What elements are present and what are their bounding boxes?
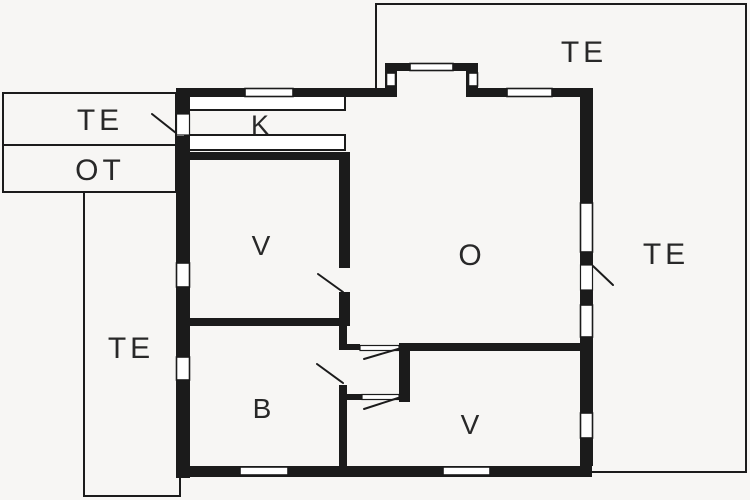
window-bottom-bedroom bbox=[443, 467, 490, 475]
bathroom-door-swing bbox=[317, 364, 343, 383]
wall-left bbox=[176, 287, 190, 357]
label-te-right-terrace: TE bbox=[643, 238, 689, 271]
wall-right bbox=[580, 290, 593, 305]
wall-bedroom-bathroom bbox=[190, 318, 345, 326]
window-right-1 bbox=[581, 203, 593, 252]
window-top-left bbox=[245, 89, 293, 97]
bedroom-upper-door-swing bbox=[318, 274, 343, 292]
terrace-door-opening bbox=[581, 265, 593, 290]
window-top-right bbox=[507, 89, 552, 97]
label-te-porch: TE bbox=[77, 104, 123, 137]
window-left-upper bbox=[177, 263, 190, 287]
wall-bottom bbox=[176, 466, 592, 477]
wall-kitchen-bedroom bbox=[183, 152, 350, 160]
label-te-top-right-terrace: TE bbox=[561, 36, 607, 69]
label-kitchen: K bbox=[251, 110, 271, 140]
interior-walls bbox=[183, 152, 580, 466]
label-bathroom: B bbox=[253, 393, 274, 424]
window-right-3 bbox=[581, 413, 593, 438]
window-bottom-bathroom bbox=[240, 467, 288, 475]
window-bay-top bbox=[410, 64, 453, 71]
front-door-opening bbox=[177, 114, 190, 135]
wall-stub-hall-bottom bbox=[339, 394, 362, 400]
label-ot-utility: OT bbox=[75, 154, 125, 187]
window-bay-left bbox=[387, 73, 396, 86]
label-bedroom-lower: V bbox=[461, 409, 482, 440]
window-right-2 bbox=[581, 305, 593, 337]
exterior-walls bbox=[176, 63, 593, 478]
terrace-top-right-outline bbox=[376, 4, 746, 472]
label-living-room: O bbox=[458, 239, 485, 272]
label-bedroom-upper: V bbox=[252, 230, 273, 261]
wall-living-bedroom-lower bbox=[399, 343, 580, 351]
floorplan-drawing: TE OT TE TE TE K V O B V bbox=[0, 0, 750, 500]
floorplan-canvas: TE OT TE TE TE K V O B V bbox=[0, 0, 750, 500]
wall-stub-hall-top bbox=[339, 344, 360, 350]
wall-right bbox=[580, 252, 593, 265]
wall-bedroom-upper-right bbox=[339, 160, 350, 268]
window-left-lower bbox=[177, 357, 190, 380]
front-door-swing bbox=[152, 114, 176, 133]
terrace-door-swing bbox=[593, 266, 613, 285]
terrace-outlines bbox=[3, 4, 746, 496]
wall-right bbox=[580, 337, 593, 413]
label-te-left-terrace: TE bbox=[108, 332, 154, 365]
wall-left bbox=[176, 380, 190, 478]
wall-closet-right bbox=[399, 343, 410, 402]
wall-right bbox=[580, 88, 593, 203]
wall-right bbox=[580, 438, 593, 466]
window-bay-right bbox=[469, 73, 478, 86]
windows-and-openings bbox=[177, 64, 593, 476]
